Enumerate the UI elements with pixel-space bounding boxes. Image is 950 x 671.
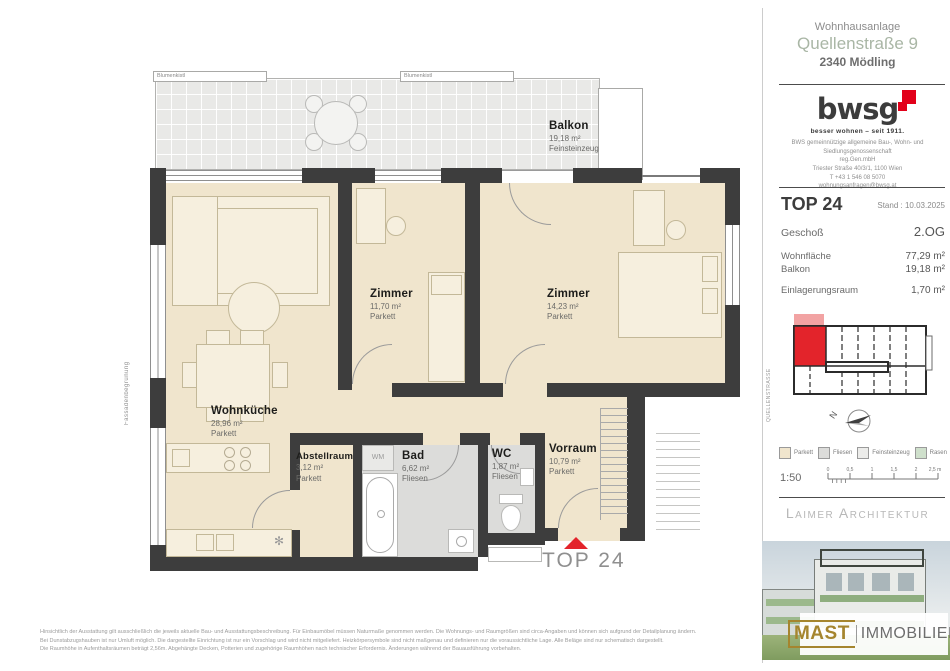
wc-sink (520, 468, 534, 486)
legend-label: Parkett (794, 450, 813, 456)
room-label-vorraum: Vorraum 10,79 m² Parkett (549, 442, 597, 478)
wall-segment (392, 383, 465, 397)
ruler-tick-label: 1,5 (891, 467, 898, 473)
feinsteinzeug-swatch (857, 447, 869, 459)
wall-segment (150, 378, 166, 428)
fliesen-swatch (818, 447, 830, 459)
wall-segment (573, 168, 642, 183)
room-floor: Fliesen (402, 474, 429, 484)
room-name: Wohnküche (211, 404, 278, 419)
keyplan-unit-highlight (794, 326, 826, 366)
lamp-symbol-icon: ✻ (274, 534, 284, 548)
window (725, 225, 740, 305)
room-label-balkon: Balkon 19,18 m² Feinsteinzeug (549, 119, 599, 155)
room-floor: Fliesen (492, 472, 519, 482)
drain-icon (377, 510, 385, 518)
window (150, 245, 166, 378)
room-floor: Parkett (549, 467, 597, 477)
legend-label: Rasen (930, 450, 947, 456)
room-floor: Parkett (547, 312, 590, 322)
legend-item: Feinsteinzeug (857, 447, 909, 459)
room-floor: Feinsteinzeug (549, 144, 599, 154)
room-name: Zimmer (370, 287, 413, 302)
area-row: Wohnfläche 77,29 m² (781, 251, 945, 262)
legend-item: Rasen (915, 447, 947, 459)
keyplan-balcony-highlight (794, 314, 824, 326)
room-area: 28,96 m² (211, 419, 278, 429)
disclaimer-line: Die Raumhöhe in Aufenthaltsräumen beträg… (40, 645, 746, 654)
room-floor: Parkett (211, 429, 278, 439)
kitchen-sink (172, 449, 190, 467)
area-value: 1,70 m² (911, 285, 945, 296)
photo-window (848, 573, 864, 591)
ruler-tick-label: 1 (871, 467, 874, 473)
facade-greening-label: Fassadenbegrünung (124, 325, 130, 425)
chair (272, 362, 288, 388)
toilet-tank (499, 494, 523, 504)
room-label-wohnkueche: Wohnküche 28,96 m² Parkett (211, 404, 278, 440)
balcony-door-opening (502, 170, 573, 182)
wm-label: WM (363, 446, 393, 470)
area-row: Balkon 19,18 m² (781, 264, 945, 275)
disclaimer-line: Hinsichtlich der Ausstattung gilt aussch… (40, 628, 746, 637)
area-row: Einlagerungsraum 1,70 m² (781, 285, 945, 296)
wall-segment (478, 533, 545, 545)
floor-label: Geschoß (781, 227, 824, 239)
photo-window (826, 573, 842, 591)
sofa-chaise (172, 196, 218, 306)
photo-window (898, 573, 914, 591)
ruler-tick-label: 0 (827, 467, 830, 473)
room-floor: Parkett (296, 474, 353, 484)
wall-segment (725, 305, 740, 397)
legend-label: Fliesen (833, 450, 852, 456)
room-label-wc: WC 1,87 m² Fliesen (492, 447, 519, 483)
washing-machine: WM (362, 445, 394, 471)
stairwell-hatch (656, 433, 700, 530)
scale-label: 1:50 (780, 472, 801, 484)
ruler-tick-label: 2 (915, 467, 918, 473)
parkett-swatch (779, 447, 791, 459)
wall-segment (353, 445, 362, 557)
ruler-tick-label: 0,5 (847, 467, 854, 473)
north-label: N (827, 409, 839, 420)
project-title: Wohnhausanlage (770, 21, 945, 33)
ruler-tick-label: 2,5 m (929, 467, 942, 473)
photo-roof-pergola (820, 549, 924, 567)
planter-box-label: Blumenkistl (153, 71, 267, 82)
site-key-plan (786, 312, 934, 408)
compass-icon (842, 404, 876, 438)
room-name: Abstellraum (296, 451, 353, 463)
wall-segment (545, 528, 558, 541)
unit-number: TOP 24 (781, 194, 842, 215)
area-label: Wohnfläche (781, 251, 831, 262)
legend-item: Parkett (779, 447, 813, 459)
divider (779, 84, 945, 85)
floorplan-sheet: Blumenkistl Blumenkistl Pflanztrog Fassa… (0, 0, 950, 671)
room-name: Bad (402, 449, 429, 464)
wall-segment (338, 183, 352, 390)
stove-burner (224, 447, 235, 458)
room-area: 14,23 m² (547, 302, 590, 312)
legend-label: Feinsteinzeug (872, 450, 909, 456)
keyplan-balcony-right (926, 336, 932, 370)
window (375, 170, 441, 181)
photo-planter-band (820, 595, 924, 602)
wardrobe-hatch (600, 408, 628, 520)
room-label-zimmer1: Zimmer 11,70 m² Parkett (370, 287, 413, 323)
balcony-area (155, 78, 600, 170)
wall-segment (465, 383, 503, 397)
wall-segment (441, 168, 502, 183)
floor-row: Geschoß 2.OG (781, 224, 945, 239)
stove-burner (240, 460, 251, 471)
city-title: 2340 Mödling (770, 55, 945, 69)
rasen-swatch (915, 447, 927, 459)
contact-line: T +43 1 546 08 5070 (770, 174, 945, 183)
disclaimer: Hinsichtlich der Ausstattung gilt aussch… (40, 628, 746, 654)
room-label-zimmer2: Zimmer 14,23 m² Parkett (547, 287, 590, 323)
chair-round (666, 220, 686, 240)
legend-item: Fliesen (818, 447, 852, 459)
room-area: 6,62 m² (402, 464, 429, 474)
architect-name: Laimer Architektur (770, 505, 945, 521)
wall-segment (290, 433, 423, 445)
stove-burner (224, 460, 235, 471)
room-name: WC (492, 447, 519, 462)
contact-line: reg.Gen.mbH (770, 156, 945, 165)
mast-logo: MAST IMMOBILIEN (800, 613, 948, 655)
siteplan-street-label: QUELLENSTRASSE (766, 330, 772, 422)
room-label-abstellraum: Abstellraum 3,12 m² Parkett (296, 451, 353, 484)
bwsg-contact: BWS gemeinnützige allgemeine Bau-, Wohn-… (770, 139, 945, 191)
floor-legend: Parkett Fliesen Feinsteinzeug Rasen (779, 447, 947, 459)
building-photo: MAST IMMOBILIEN (762, 541, 950, 660)
room-area: 1,87 m² (492, 462, 519, 472)
divider (779, 187, 945, 188)
bwsg-logo-text: bwsg (817, 92, 899, 126)
room-area: 19,18 m² (549, 134, 599, 144)
area-label: Balkon (781, 264, 810, 275)
wall-segment (547, 383, 725, 397)
area-label: Einlagerungsraum (781, 285, 858, 296)
dining-table (196, 344, 270, 408)
photo-window (872, 573, 890, 591)
wall-segment (535, 445, 545, 533)
street-title: Quellenstraße 9 (770, 34, 945, 54)
bwsg-square-icon (898, 102, 907, 111)
pillow (702, 256, 718, 282)
floor-value: 2.OG (914, 224, 945, 239)
scale-ruler: 0 0,5 1 1,5 2 2,5 m (822, 466, 944, 488)
sink-basin (196, 534, 214, 551)
window (150, 428, 166, 545)
wall-segment (725, 168, 740, 225)
entry-top-label: TOP 24 (542, 549, 626, 573)
room-area: 3,12 m² (296, 463, 353, 473)
room-label-bad: Bad 6,62 m² Fliesen (402, 449, 429, 485)
wall-segment (150, 557, 478, 571)
room-name: Zimmer (547, 287, 590, 302)
wall-segment (627, 397, 645, 530)
sink-basin (216, 534, 234, 551)
wall-segment (302, 168, 375, 183)
bwsg-logo: bwsg (770, 92, 945, 126)
entry-triangle-icon (564, 537, 588, 549)
room-area: 10,79 m² (549, 457, 597, 467)
blumenkistl-text: Blumenkistl (157, 73, 185, 79)
plan-date: Stand : 10.03.2025 (857, 201, 945, 210)
pillow (702, 288, 718, 314)
chair-round (386, 216, 406, 236)
contact-line: Siedlungsgenossenschaft (770, 148, 945, 157)
sink-drain-icon (456, 536, 467, 547)
divider (779, 497, 945, 498)
pillow (431, 275, 462, 295)
blumenkistl-text: Blumenkistl (404, 73, 432, 79)
planter-box-label: Blumenkistl (400, 71, 514, 82)
room-name: Vorraum (549, 442, 597, 457)
room-area: 11,70 m² (370, 302, 413, 312)
window (166, 170, 302, 181)
wall-segment (150, 168, 166, 245)
wardrobe (356, 188, 386, 244)
wall-thin (642, 175, 700, 177)
room-floor: Parkett (370, 312, 413, 322)
wall-segment (460, 433, 490, 445)
area-value: 19,18 m² (906, 264, 945, 275)
keyplan-corridor (826, 362, 888, 372)
coffee-table (228, 282, 280, 334)
contact-line: Triester Straße 40/3/1, 1100 Wien (770, 165, 945, 174)
doormat (488, 547, 542, 562)
bwsg-tagline: besser wohnen – seit 1911. (770, 128, 945, 135)
balcony-table (314, 101, 358, 145)
plant-trough: Pflanztrog (598, 88, 643, 180)
mast-logo-primary: MAST (788, 620, 855, 648)
wall-segment (465, 183, 480, 383)
stove-burner (240, 447, 251, 458)
room-name: Balkon (549, 119, 599, 134)
area-value: 77,29 m² (906, 251, 945, 262)
mast-logo-secondary: IMMOBILIEN (856, 625, 950, 643)
wardrobe (633, 190, 665, 246)
wall-segment (520, 433, 545, 445)
disclaimer-line: Bei Dunstabzugshauben ist nur Umluft mög… (40, 637, 746, 646)
contact-line: BWS gemeinnützige allgemeine Bau-, Wohn-… (770, 139, 945, 148)
